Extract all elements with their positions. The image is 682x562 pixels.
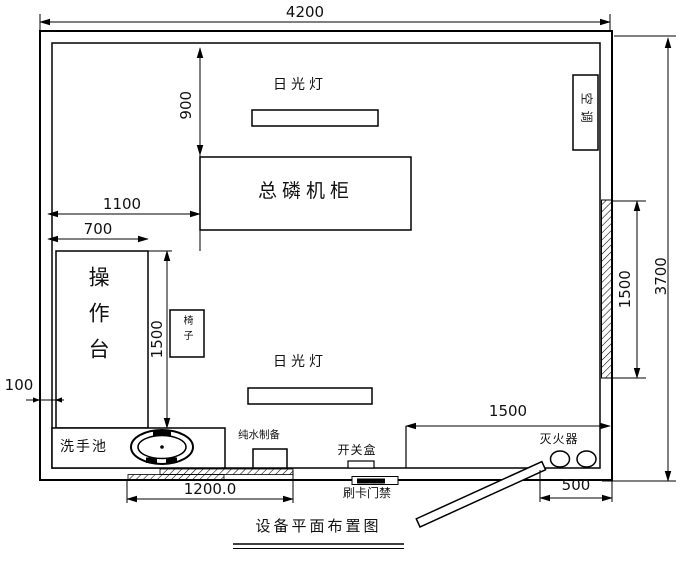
extinguisher-2 (577, 451, 596, 467)
lamp-bottom-fixture (248, 388, 372, 404)
cabinet-label: 总磷机柜 (206, 181, 406, 202)
card-reader-label: 刷卡门禁 (330, 487, 404, 500)
lamp-top-label: 日光灯 (240, 78, 360, 93)
dim-console-width: 700 (58, 221, 138, 238)
dim-door-width: 500 (546, 477, 606, 494)
page-title: 设备平面布置图 (233, 518, 404, 535)
dim-console-length: 1500 (149, 309, 166, 369)
dim-overall-width: 4200 (270, 4, 340, 21)
pure-water-label: 纯水制备 (222, 430, 296, 442)
console-label: 操作台 (86, 266, 109, 374)
switch-box-shape (348, 461, 374, 468)
sink-label: 洗手池 (60, 440, 108, 455)
dim-console-gap: 100 (0, 377, 38, 394)
pure-water-box (253, 449, 287, 468)
switch-box-label: 开关盒 (327, 444, 387, 457)
extinguisher-1 (551, 451, 570, 467)
aircon-label: 空调 (579, 86, 592, 136)
card-reader-shape (357, 479, 385, 484)
dim-cabinet-offset: 1100 (82, 196, 162, 213)
floor-plan-drawing: 4200 3700 900 1100 700 1500 100 1200.0 1… (0, 0, 682, 562)
chair-label: 椅子 (181, 315, 192, 345)
extinguisher-label: 灭火器 (522, 433, 596, 446)
dim-side-window: 1500 (617, 259, 634, 319)
bottom-window-upper (160, 469, 293, 475)
right-window (602, 200, 612, 378)
lamp-bottom-label: 日光灯 (240, 355, 360, 370)
dim-overall-height: 3700 (653, 246, 670, 306)
door-leaf (416, 462, 545, 527)
dim-lamp-offset: 900 (178, 80, 195, 130)
dim-door-zone: 1500 (468, 403, 548, 420)
sink-faucet (153, 430, 171, 436)
lamp-top-fixture (252, 110, 378, 126)
dim-bottom-window: 1200.0 (170, 481, 250, 498)
